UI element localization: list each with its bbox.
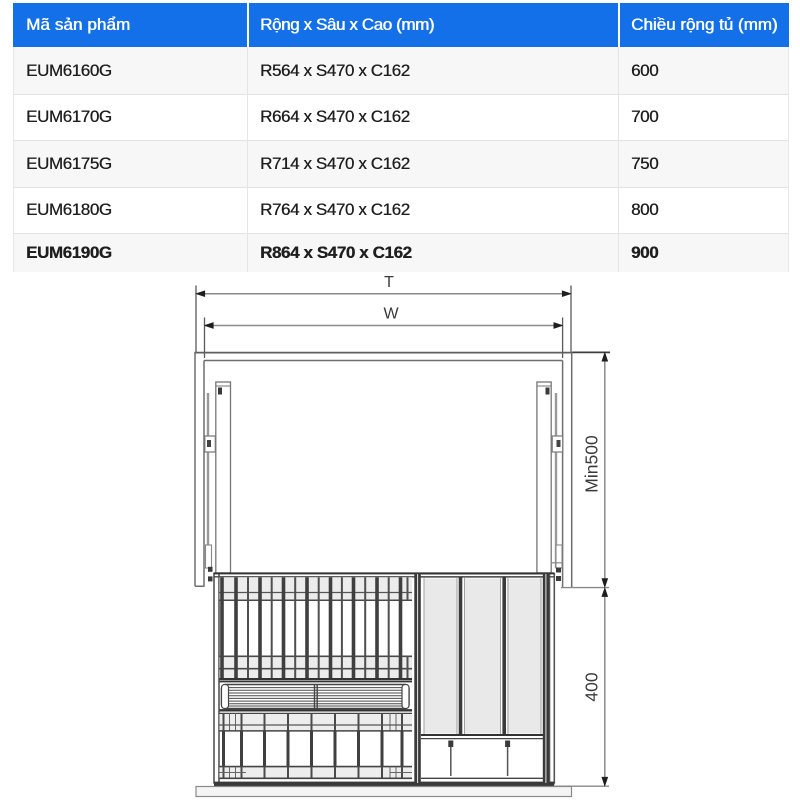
svg-text:T: T bbox=[384, 274, 394, 291]
svg-text:W: W bbox=[383, 306, 399, 323]
svg-text:Min500: Min500 bbox=[582, 435, 602, 493]
svg-text:400: 400 bbox=[582, 672, 602, 701]
